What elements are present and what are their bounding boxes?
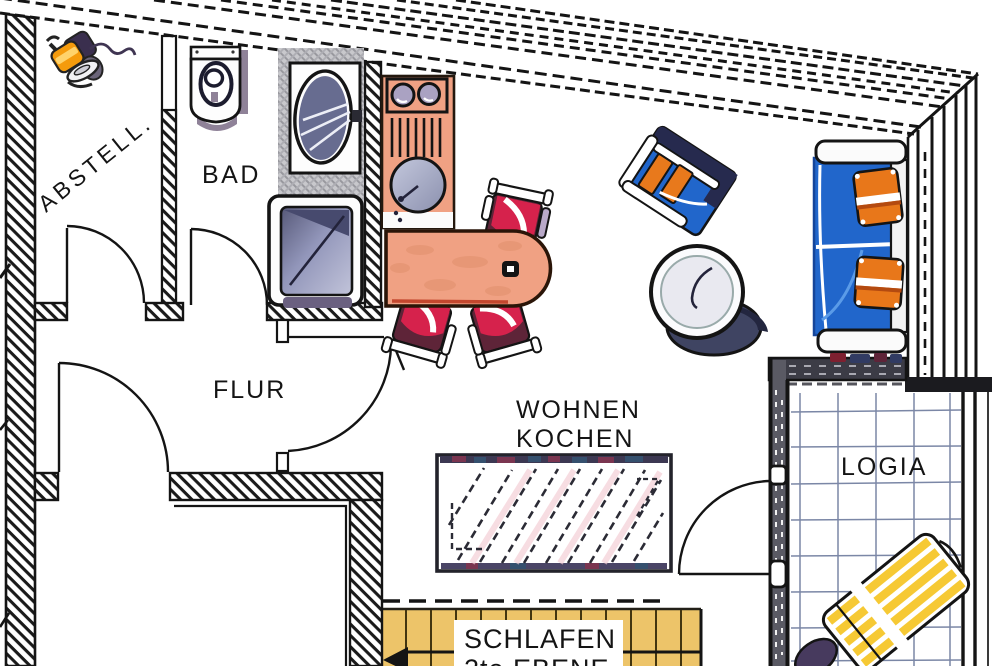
svg-text:BAD: BAD	[202, 161, 261, 189]
svg-text:2te EBENE: 2te EBENE	[464, 654, 610, 666]
svg-text:WOHNEN: WOHNEN	[516, 396, 641, 424]
svg-text:KOCHEN: KOCHEN	[516, 425, 634, 453]
svg-text:FLUR: FLUR	[213, 376, 286, 404]
svg-text:ABSTELL.: ABSTELL.	[33, 109, 158, 217]
svg-text:LOGIA: LOGIA	[841, 453, 927, 481]
svg-text:SCHLAFEN: SCHLAFEN	[464, 624, 616, 654]
